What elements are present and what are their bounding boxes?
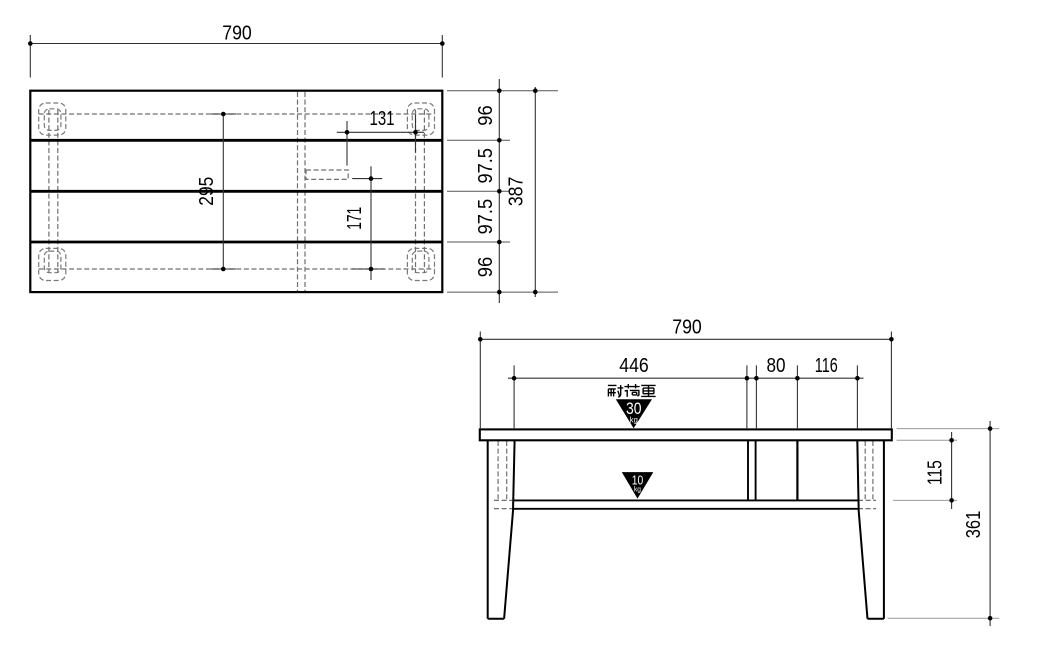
svg-text:361: 361	[963, 511, 985, 539]
svg-text:790: 790	[672, 317, 702, 339]
svg-text:80: 80	[767, 355, 786, 377]
svg-text:116: 116	[815, 355, 838, 377]
svg-text:96: 96	[475, 257, 497, 278]
svg-text:115: 115	[925, 460, 947, 485]
svg-text:387: 387	[506, 177, 528, 207]
svg-text:790: 790	[222, 23, 252, 45]
svg-text:131: 131	[370, 108, 395, 130]
svg-text:97.5: 97.5	[475, 199, 497, 235]
svg-text:10: 10	[632, 472, 644, 487]
svg-text:97.5: 97.5	[475, 148, 497, 184]
svg-text:kg: kg	[630, 416, 638, 425]
svg-text:446: 446	[619, 355, 649, 377]
svg-text:171: 171	[344, 207, 366, 230]
svg-text:kg: kg	[634, 486, 641, 493]
svg-text:295: 295	[196, 177, 218, 206]
svg-text:96: 96	[475, 105, 497, 126]
